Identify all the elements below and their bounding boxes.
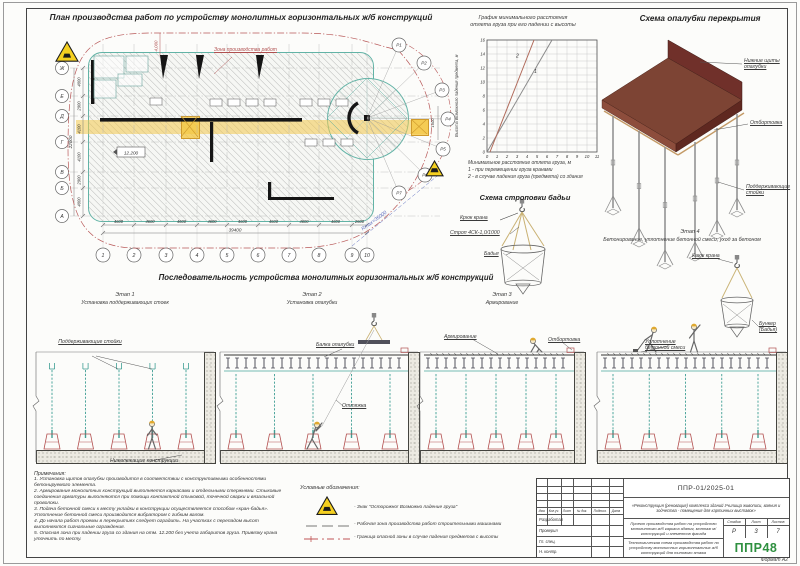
svg-text:2: 2: [505, 154, 509, 159]
chart-legend-1: 1 - при перемещении груза кранами: [468, 168, 628, 174]
svg-text:3: 3: [165, 253, 168, 259]
lists-header: Листов: [767, 518, 789, 525]
note-item: 3. Подача бетонной смеси к месту укладки…: [34, 507, 288, 519]
tb-line: [537, 500, 623, 501]
svg-text:1: 1: [534, 69, 537, 75]
svg-text:4100: 4100: [77, 152, 82, 162]
stage1-name: Этап 1: [45, 292, 205, 299]
drawing-sheet: ЖЕДГВБА123456789104600460046004600460046…: [0, 0, 800, 566]
notes-items: 1. Установка щитов опалубки производится…: [34, 477, 288, 543]
svg-text:Р3: Р3: [439, 88, 445, 93]
svg-text:6: 6: [483, 108, 486, 113]
title-block: ППР-01/2025-01 «Реконструкция (реновация…: [536, 478, 790, 558]
stages-linework: [33, 213, 786, 462]
svg-text:4000: 4000: [77, 77, 82, 87]
svg-text:4600: 4600: [269, 219, 279, 224]
svg-text:12: 12: [480, 66, 485, 71]
stage2-guy-label: Оттяжка: [342, 403, 372, 409]
notes-block: Примечания: 1. Установка щитов опалубки …: [34, 471, 288, 543]
svg-text:1600: 1600: [430, 118, 435, 128]
doc-number: ППР-01/2025-01: [623, 479, 789, 497]
note-item: 1. Установка щитов опалубки производится…: [34, 477, 288, 489]
svg-text:Р5: Р5: [440, 147, 446, 152]
stage3-flange-label: Отбортовка: [548, 337, 586, 343]
svg-text:1: 1: [496, 154, 498, 159]
svg-text:Р2: Р2: [421, 61, 427, 66]
sling-title: Схема строповки бадьи: [452, 193, 598, 202]
svg-text:4600: 4600: [238, 219, 248, 224]
tb-header-col: Изм.: [537, 507, 547, 514]
tb-header-col: Лист: [561, 507, 573, 514]
stage-value: Р: [723, 525, 745, 538]
tb-header-col: № док.: [573, 507, 591, 514]
svg-text:2900: 2900: [77, 175, 82, 186]
svg-text:11: 11: [595, 154, 599, 159]
svg-text:4600: 4600: [299, 219, 309, 224]
stage-header: Стадия: [723, 518, 745, 525]
svg-text:4600: 4600: [207, 219, 217, 224]
stage2-caption: Установка опалубки: [232, 300, 392, 306]
legend-icons: [304, 497, 350, 542]
tb-role: Н. контр.: [539, 546, 589, 557]
svg-text:6: 6: [546, 154, 549, 159]
svg-text:4600: 4600: [145, 219, 155, 224]
stage1-caption: Установка поддерживающих стоек: [45, 300, 205, 306]
svg-text:39400: 39400: [229, 228, 242, 233]
svg-text:9: 9: [351, 253, 354, 259]
svg-text:Р1: Р1: [396, 43, 402, 48]
plan-linework: ЖЕДГВБА123456789104600460046004600460046…: [56, 33, 456, 262]
stage2-beam-label: Балка опалубки: [316, 342, 366, 348]
chart-x-axis-caption: Минимальное расстояние отлета груза, м: [468, 161, 628, 167]
svg-text:8: 8: [318, 253, 321, 259]
tb-header-col: Подпись: [591, 507, 609, 514]
svg-text:10: 10: [364, 253, 370, 259]
tb-line: [537, 486, 623, 487]
svg-text:8: 8: [566, 154, 569, 159]
legend-item-text: - Граница опасной зоны в случае падения …: [354, 535, 532, 540]
svg-text:4,000: 4,000: [154, 40, 159, 52]
legend-item-text: - Рабочая зона производства работ строит…: [354, 522, 532, 527]
stage2-name: Этап 2: [232, 292, 392, 299]
formwork-title: Схема опалубки перекрытия: [612, 14, 788, 23]
formwork-props-label: Поддерживающие стойки: [746, 184, 794, 196]
svg-text:2600: 2600: [354, 219, 365, 224]
svg-text:16: 16: [480, 38, 485, 43]
stage3-name: Этап 3: [422, 292, 582, 299]
falling-distance-chart: 02468101214160123456789101112: [480, 38, 599, 159]
sequence-title: Последовательность устройства монолитных…: [150, 273, 502, 282]
tb-line: [537, 493, 623, 494]
sling-bucket-label: Бадья: [484, 251, 508, 257]
svg-text:6: 6: [257, 253, 260, 259]
svg-text:2: 2: [482, 136, 486, 141]
tb-role: Гл. спец.: [539, 536, 589, 546]
svg-text:5: 5: [226, 253, 229, 259]
svg-text:4: 4: [196, 253, 199, 259]
svg-text:Ж: Ж: [59, 66, 65, 72]
tb-role: Разработал: [539, 514, 589, 525]
formwork-flange-label: Отбортовка: [750, 120, 792, 126]
svg-text:А: А: [59, 214, 64, 220]
svg-text:4000: 4000: [77, 197, 82, 207]
sling-scheme-linework: [500, 199, 545, 294]
sheet-name: Технологическая схема производства работ…: [626, 539, 721, 556]
svg-text:4100: 4100: [77, 124, 82, 134]
svg-text:14: 14: [480, 52, 485, 57]
stage4-hook-label: Крюк крана: [692, 253, 732, 259]
stage3-caption: Армирование: [422, 300, 582, 306]
list-value: 3: [745, 525, 767, 538]
svg-text:Д: Д: [59, 114, 64, 120]
project-name: Проект производства работ на устройство …: [626, 519, 721, 537]
stage4-caption: Бетонирование, уплотнение бетонной смеси…: [574, 237, 790, 243]
svg-text:3: 3: [516, 154, 519, 159]
tb-header-col: Дата: [609, 507, 623, 514]
stage3-rebar-label: Армирование: [444, 334, 488, 340]
svg-text:4: 4: [526, 154, 529, 159]
svg-text:9: 9: [576, 154, 579, 159]
note-item: 4. До начала работ проемы в перекрытиях …: [34, 519, 288, 531]
legend-item-text: - Знак "Осторожно! Возможно падение груз…: [354, 505, 532, 510]
formwork-panels-label: Нижние щиты опалубки: [744, 58, 790, 70]
note-item: 5. Опасная зона при падении груза со зда…: [34, 531, 288, 543]
svg-text:12.200: 12.200: [124, 150, 139, 155]
tb-role: Проверил: [539, 525, 589, 536]
svg-text:2: 2: [132, 253, 136, 259]
svg-text:1: 1: [102, 253, 105, 259]
stage1-below-label: Нижележащие конструкции: [110, 458, 196, 464]
chart-title-line1: График минимального расстояния: [450, 15, 596, 21]
svg-text:4: 4: [483, 122, 486, 127]
stage4-compact-label: Уплотнение бетонной смеси: [645, 339, 697, 351]
svg-text:10: 10: [480, 80, 485, 85]
svg-text:7: 7: [556, 154, 559, 159]
object-name: «Реконструкция (реновация) комплекса зда…: [626, 498, 786, 517]
svg-text:8: 8: [483, 94, 486, 99]
svg-text:10: 10: [585, 154, 590, 159]
chart-legend-2: 2 - в случае падения груза (предмета) со…: [468, 175, 628, 181]
svg-text:Р4: Р4: [445, 117, 451, 122]
svg-text:22000: 22000: [68, 135, 73, 149]
tb-header-col: Кол.уч.: [547, 507, 561, 514]
format-label: Формат А2: [700, 557, 788, 563]
legend-heading: Условные обозначения:: [300, 485, 360, 491]
work-zone-label: Зона производства работ: [214, 48, 288, 54]
stage4-name: Этап 4: [640, 229, 740, 236]
svg-text:0: 0: [486, 154, 489, 159]
lists-value: 7: [767, 525, 789, 538]
stage1-props-label: Поддерживающие стойки: [58, 339, 122, 345]
plan-title: План производства работ по устройству мо…: [46, 13, 436, 22]
sling-rope-label: Строп 4СК-1,0/1000: [450, 230, 512, 236]
note-item: 2. Армирование монолитных конструкций вы…: [34, 489, 288, 507]
svg-text:4600: 4600: [177, 219, 187, 224]
company-logo: ППР48: [723, 538, 789, 557]
svg-text:4600: 4600: [331, 219, 341, 224]
svg-text:4600: 4600: [114, 219, 124, 224]
svg-text:Р7: Р7: [396, 191, 402, 196]
chart-y-axis-label: Высота возможного падения предмета, м: [455, 40, 464, 152]
sling-hook-label: Крюк крана: [460, 215, 500, 221]
chart-title-line2: отлета груза при его падении с высоты: [446, 22, 600, 28]
list-header: Лист: [745, 518, 767, 525]
svg-text:5: 5: [536, 154, 539, 159]
svg-text:2900: 2900: [77, 101, 82, 112]
svg-text:2: 2: [515, 54, 519, 60]
stage4-bucket-label: Бункер (Бадья): [759, 321, 789, 333]
